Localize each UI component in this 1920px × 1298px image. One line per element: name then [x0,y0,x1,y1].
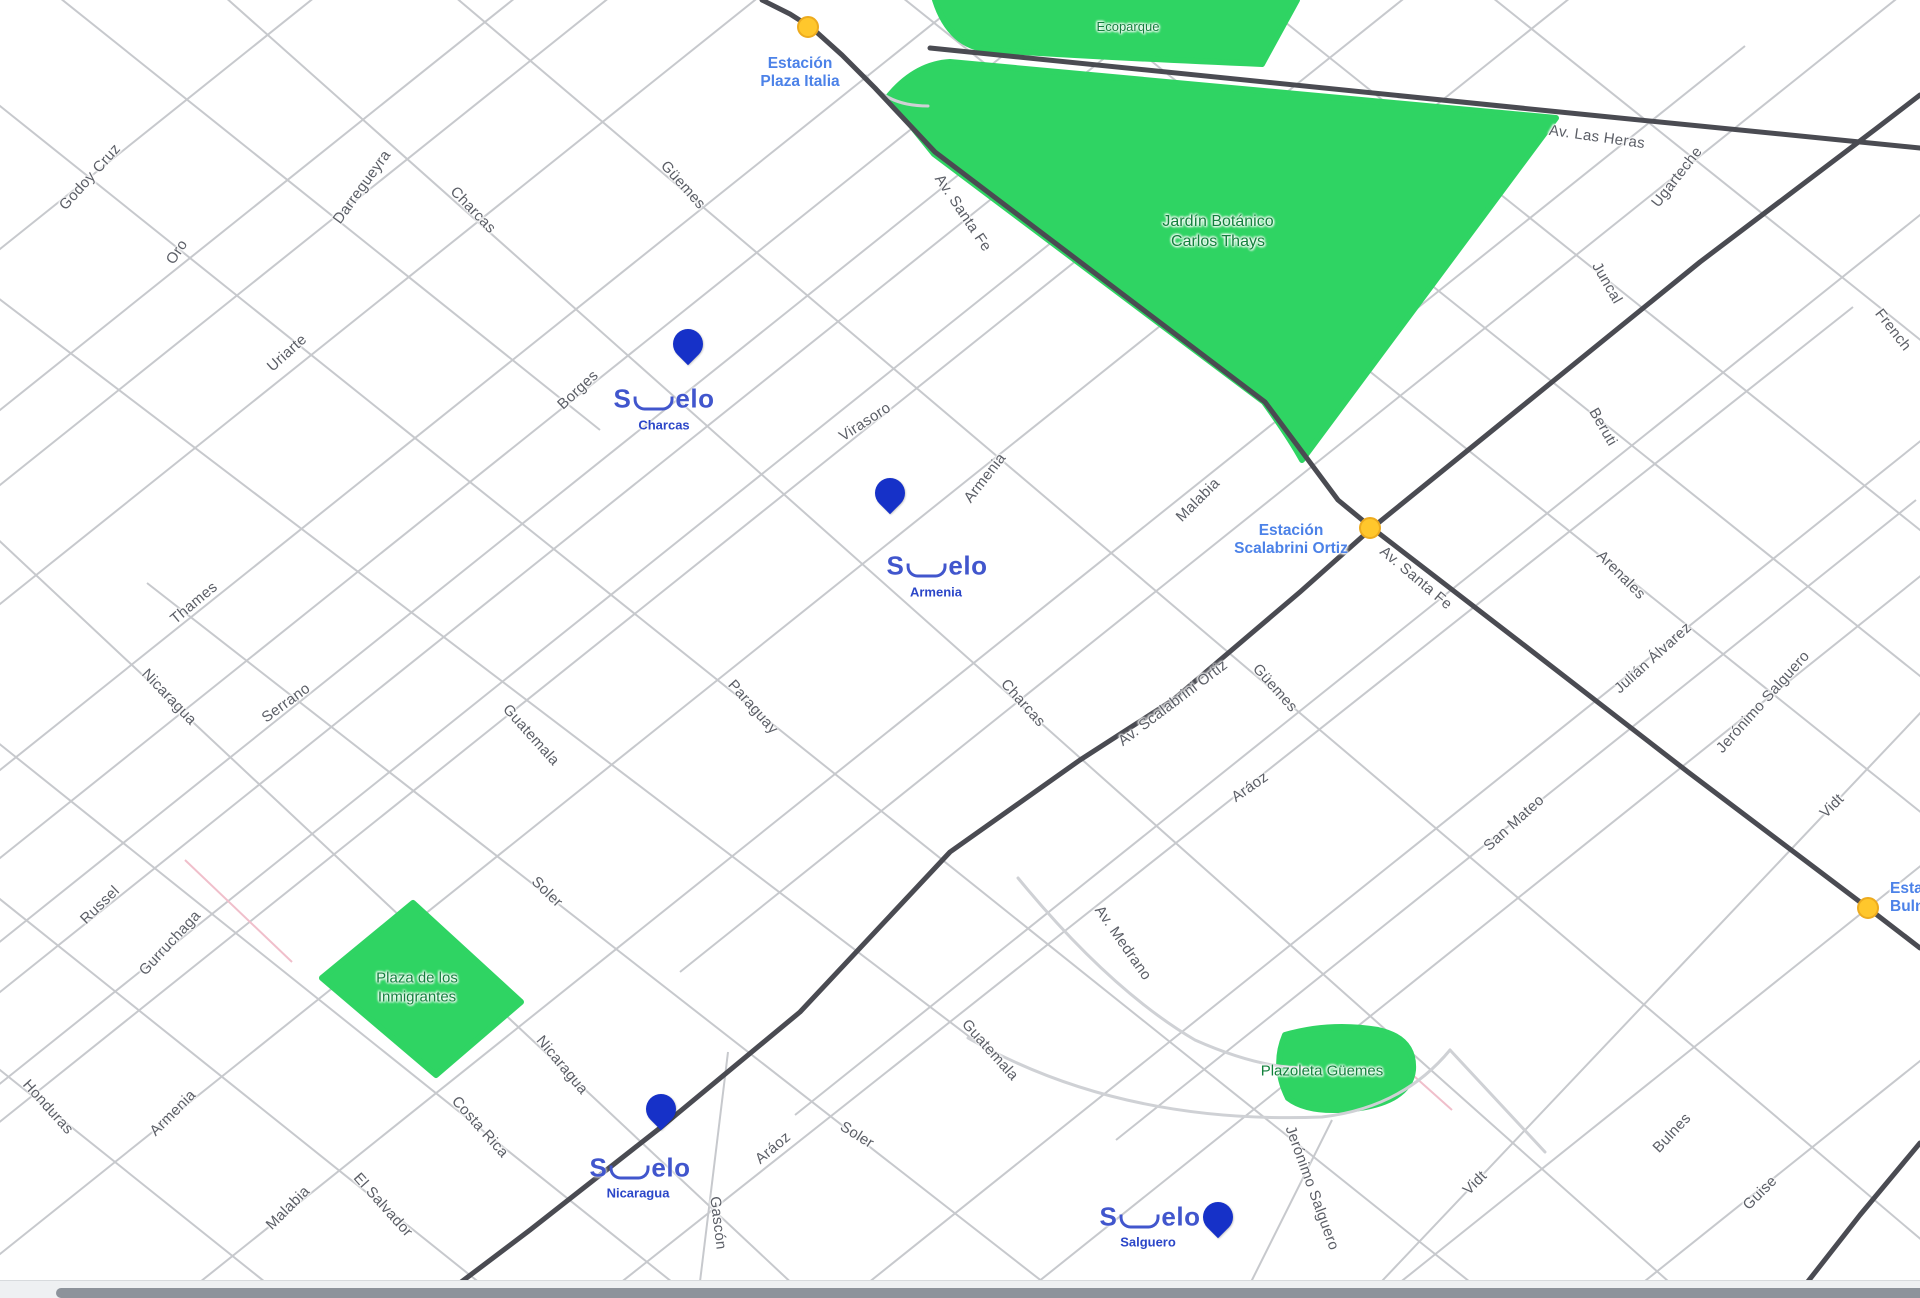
logo-letters-elo: elo [651,1153,690,1184]
pin-sublabel-nicaragua: Nicaragua [607,1186,670,1201]
street-line-35 [698,1052,728,1298]
pin-sublabel-salguero: Salguero [1120,1235,1176,1250]
brand-logo-suelo-nicaragua: Selo [590,1153,691,1184]
station-label-estacion-bulnes: EstaciónBulnes [1890,880,1920,916]
station-dot-estacion-plaza-italia[interactable] [797,16,819,38]
logo-letter-s: S [887,551,905,582]
minor-road-1 [1018,878,1305,1068]
park-label-jardin-botanico-carlos-thays: Jardín BotánicoCarlos Thays [1162,212,1273,252]
station-label-estacion-plaza-italia: EstaciónPlaza Italia [760,55,839,91]
pin-sublabel-charcas: Charcas [638,418,689,433]
park-label-plazoleta-guemes: Plazoleta Güemes [1261,1063,1384,1082]
street-line-33 [0,310,1050,1298]
park-jardin-botanico-carlos-thays [888,62,1556,460]
logo-u-glyph [906,563,946,577]
street-line-18 [790,365,1920,1298]
street-line-32 [0,408,1386,1298]
station-dot-estacion-scalabrini-ortiz[interactable] [1359,517,1381,539]
park-label-ecoparque: Ecoparque [1097,19,1160,35]
logo-letters-elo: elo [1161,1202,1200,1233]
logo-letter-s: S [1100,1202,1118,1233]
logo-letters-elo: elo [948,551,987,582]
bottom-scrollbar-thumb[interactable] [56,1288,1920,1298]
logo-letter-s: S [590,1153,608,1184]
pin-sublabel-armenia: Armenia [910,585,962,600]
brand-logo-suelo-armenia: Selo [887,551,988,582]
logo-u-glyph [609,1165,649,1179]
logo-letters-elo: elo [675,384,714,415]
station-dot-estacion-bulnes[interactable] [1857,897,1879,919]
brand-logo-suelo-charcas: Selo [614,384,715,415]
brand-logo-suelo-salguero: Selo [1100,1202,1201,1233]
street-line-11 [0,0,1862,1232]
street-line-12 [173,307,1853,1298]
map-canvas[interactable]: Godoy CruzOroUriarteDarregueyraCharcasGü… [0,0,1920,1298]
district-boundary-0 [185,860,292,962]
logo-u-glyph [1119,1214,1159,1228]
park-label-plaza-de-los-inmigrantes: Plaza de losInmigrantes [376,969,458,1007]
street-line-30 [0,325,862,1298]
avenue-av-coronel-diaz [1795,1143,1920,1298]
logo-u-glyph [633,396,673,410]
logo-letter-s: S [614,384,632,415]
station-label-estacion-scalabrini-ortiz: EstaciónScalabrini Ortiz [1234,522,1348,558]
